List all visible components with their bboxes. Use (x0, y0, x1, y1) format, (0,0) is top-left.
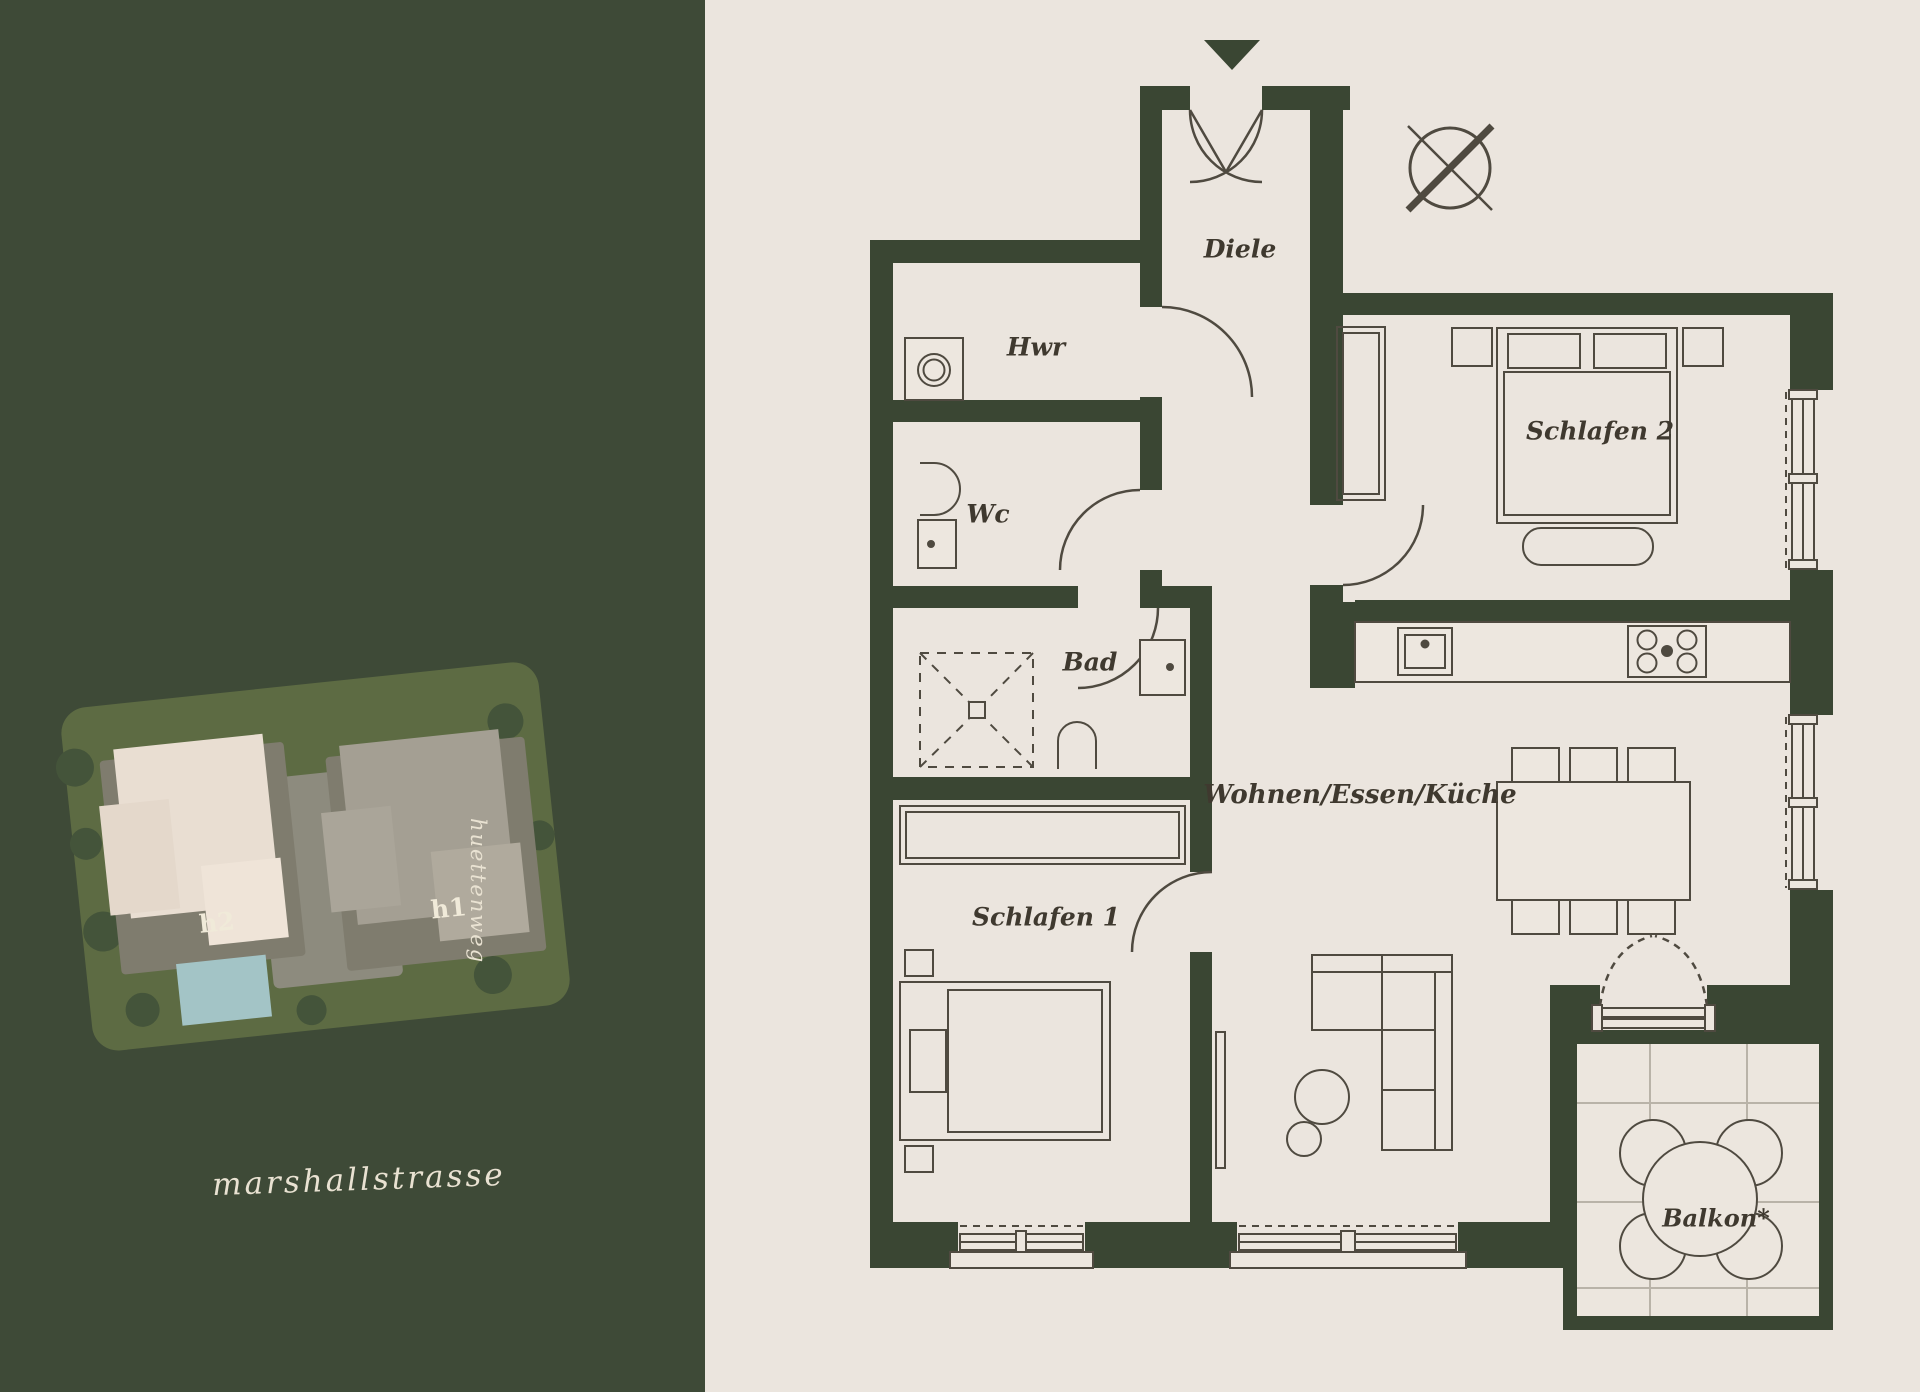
nightstand (1452, 328, 1492, 366)
tv-board (1216, 1032, 1225, 1168)
wall-segment (1140, 86, 1162, 307)
room-label-diele: Diele (1204, 235, 1277, 264)
balcony-door-swing (1600, 936, 1707, 1006)
dining-table (1497, 782, 1690, 900)
room-label-balkon: Balkon* (1662, 1204, 1770, 1233)
wc-door-arc (1060, 490, 1140, 570)
shower-drain (969, 702, 985, 718)
balcony-set (1620, 1120, 1782, 1279)
chair (1512, 748, 1559, 782)
wall-segment (1458, 1222, 1572, 1268)
toilet-icon (920, 463, 960, 515)
chair (1570, 748, 1617, 782)
wall-segment (1190, 952, 1212, 1222)
entrance-arrow-icon (1204, 40, 1260, 70)
wall-segment (1790, 890, 1833, 985)
wall-segment (1310, 602, 1355, 688)
schlafen1-door-arc (1132, 872, 1212, 952)
blanket (948, 990, 1102, 1132)
living-furniture (1216, 955, 1452, 1168)
room-label-schlafen1: Schlafen 1 (972, 903, 1120, 932)
balcony-door (1592, 1005, 1715, 1031)
wall-segment (1310, 293, 1833, 315)
wall-segment (1085, 1222, 1237, 1268)
bench (1523, 528, 1653, 565)
pillow (1508, 334, 1580, 368)
stove-icon (1628, 626, 1706, 677)
pillow (910, 1030, 946, 1092)
wall-segment (1190, 800, 1212, 872)
wall-segment (893, 586, 1078, 608)
balcony-table (1643, 1142, 1757, 1256)
nightstand (905, 950, 933, 976)
wall-segment (870, 777, 1212, 800)
hwr-door-arc (1162, 307, 1252, 397)
wall-segment (870, 1222, 958, 1268)
wall-segment (870, 240, 1162, 263)
room-label-schlafen2: Schlafen 2 (1526, 417, 1674, 446)
nightstand (1683, 328, 1723, 366)
wardrobe (1337, 327, 1385, 500)
wardrobe-inner (1343, 333, 1379, 494)
coffee-table (1287, 1122, 1321, 1156)
chair (1628, 748, 1675, 782)
coffee-table (1295, 1070, 1349, 1124)
wall-segment (1707, 985, 1833, 1030)
chair (1628, 900, 1675, 934)
wall-segment (1262, 86, 1350, 110)
wc-fixtures (918, 463, 960, 568)
chair (1512, 900, 1559, 934)
wardrobe (900, 806, 1185, 864)
wall-segment (1790, 315, 1833, 390)
chair (1570, 900, 1617, 934)
page: h2 h1 marshallstrasse huettenweg (0, 0, 1920, 1392)
kitchen-counter (1355, 622, 1790, 682)
room-label-hwr: Hwr (1007, 333, 1065, 362)
shower-icon (920, 653, 1033, 767)
room-label-wc: Wc (966, 500, 1009, 529)
wall-segment (1310, 585, 1343, 602)
wardrobe-inner (906, 812, 1179, 858)
nightstand (905, 1146, 933, 1172)
wall-segment (1790, 570, 1833, 715)
schlafen2-furniture (1337, 327, 1723, 565)
wall-segment (1355, 600, 1790, 622)
sink-icon (918, 520, 956, 568)
wall-segment (870, 240, 893, 1268)
room-label-wohnen: Wohnen/Essen/Küche (1203, 780, 1516, 810)
schlafen1-furniture (900, 806, 1185, 1172)
sink-icon (1140, 640, 1185, 695)
schlafen2-door-arc (1343, 505, 1423, 585)
compass-icon (1408, 126, 1492, 210)
room-label-bad: Bad (1063, 648, 1118, 677)
washing-machine-icon (905, 338, 963, 400)
wall-segment (893, 400, 1140, 422)
wall-segment (1140, 397, 1162, 490)
bed (900, 982, 1110, 1140)
wall-segment (1190, 586, 1212, 800)
toilet-icon (1058, 722, 1096, 769)
pillow (1594, 334, 1666, 368)
dining-set (1497, 748, 1690, 934)
floor-plan (0, 0, 1920, 1392)
bad-fixtures (920, 640, 1185, 769)
